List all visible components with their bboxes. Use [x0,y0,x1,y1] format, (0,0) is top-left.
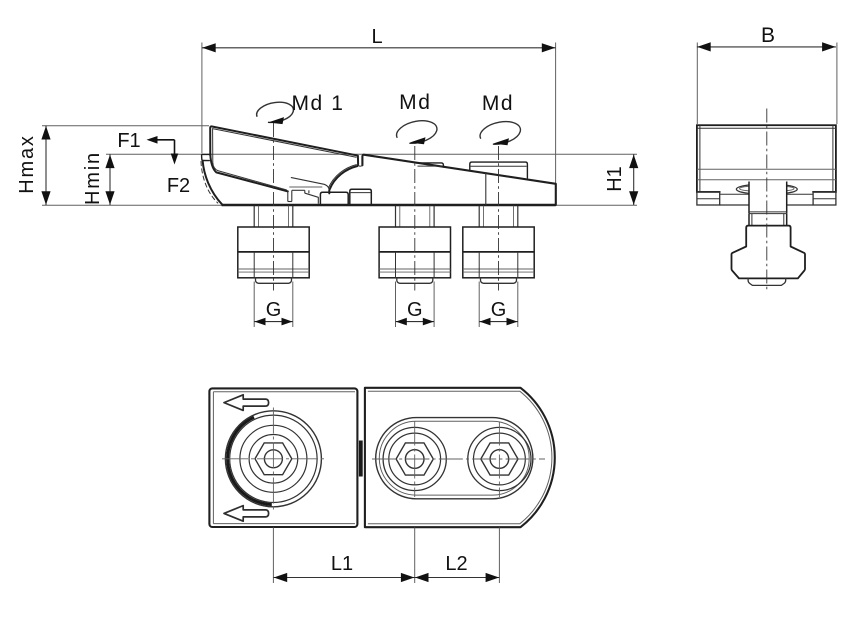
svg-text:B: B [761,24,775,47]
svg-text:Hmin: Hmin [82,151,104,205]
svg-text:Hmax: Hmax [16,134,38,193]
svg-text:Md: Md [399,91,431,114]
svg-text:G: G [266,299,282,321]
svg-text:L1: L1 [331,553,353,575]
svg-text:L2: L2 [445,553,467,575]
svg-text:Md: Md [482,92,514,115]
svg-text:Md 1: Md 1 [291,92,344,115]
svg-text:H1: H1 [604,166,626,192]
svg-text:F1: F1 [117,130,140,152]
svg-text:G: G [407,299,423,321]
svg-text:L: L [371,26,382,48]
svg-text:G: G [491,299,507,321]
svg-text:F2: F2 [167,175,190,197]
